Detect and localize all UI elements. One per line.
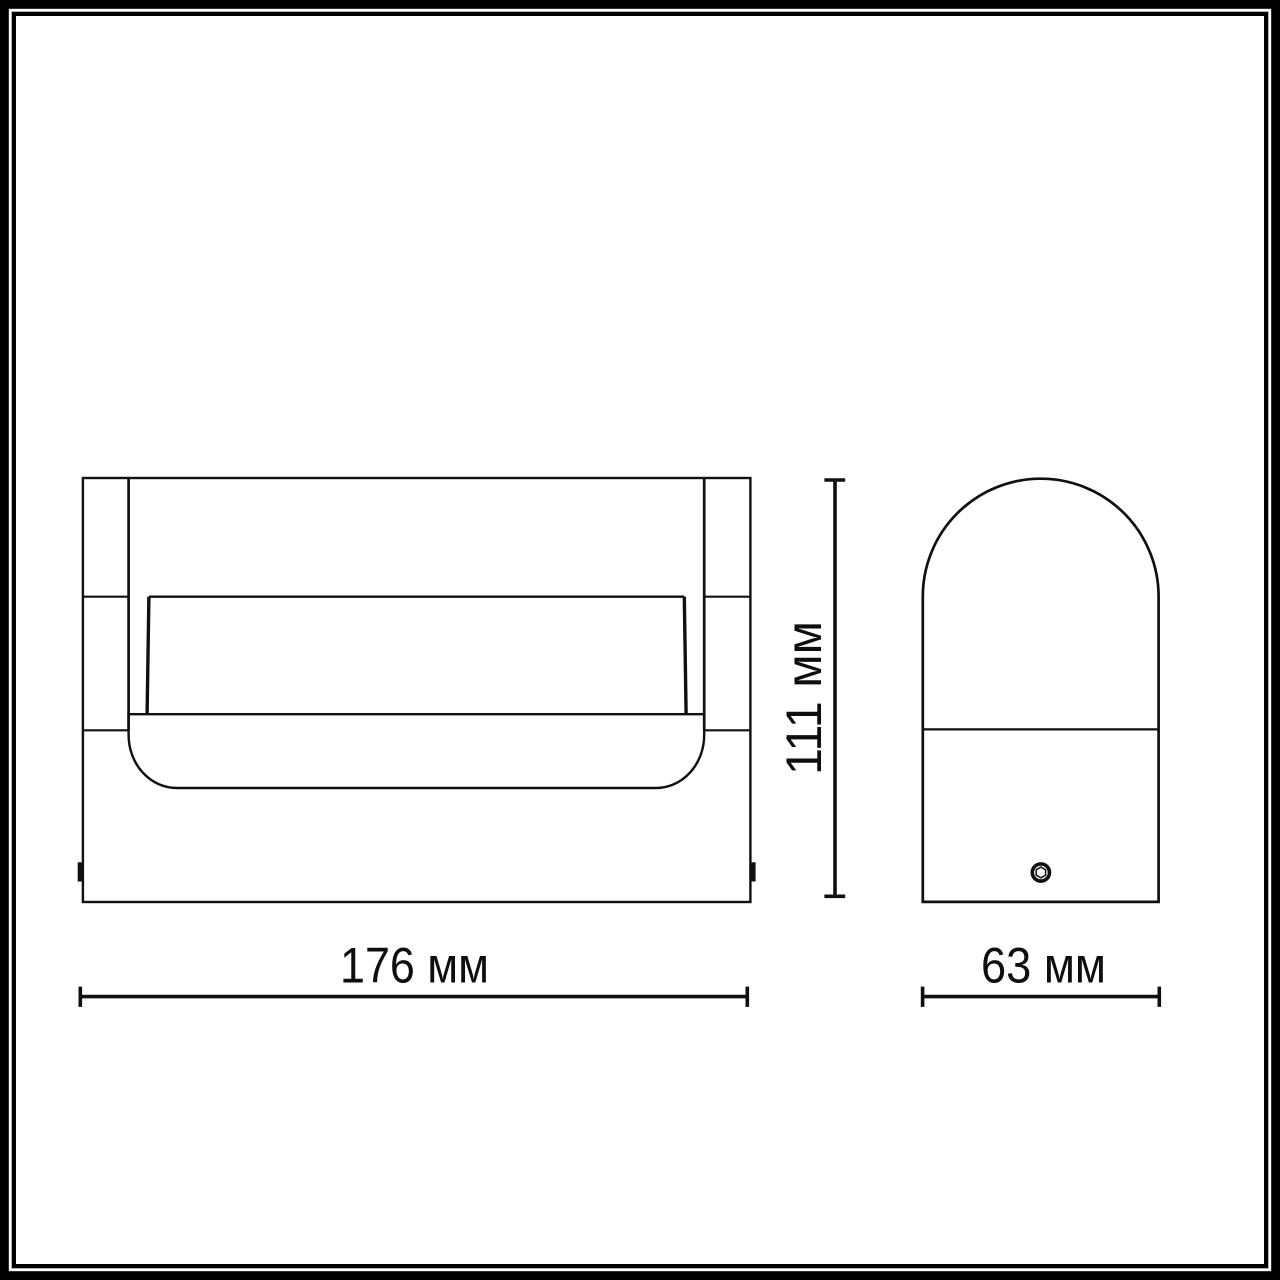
svg-text:176 мм: 176 мм — [340, 937, 489, 994]
svg-text:111 мм: 111 мм — [775, 621, 832, 775]
svg-text:63 мм: 63 мм — [981, 937, 1106, 994]
